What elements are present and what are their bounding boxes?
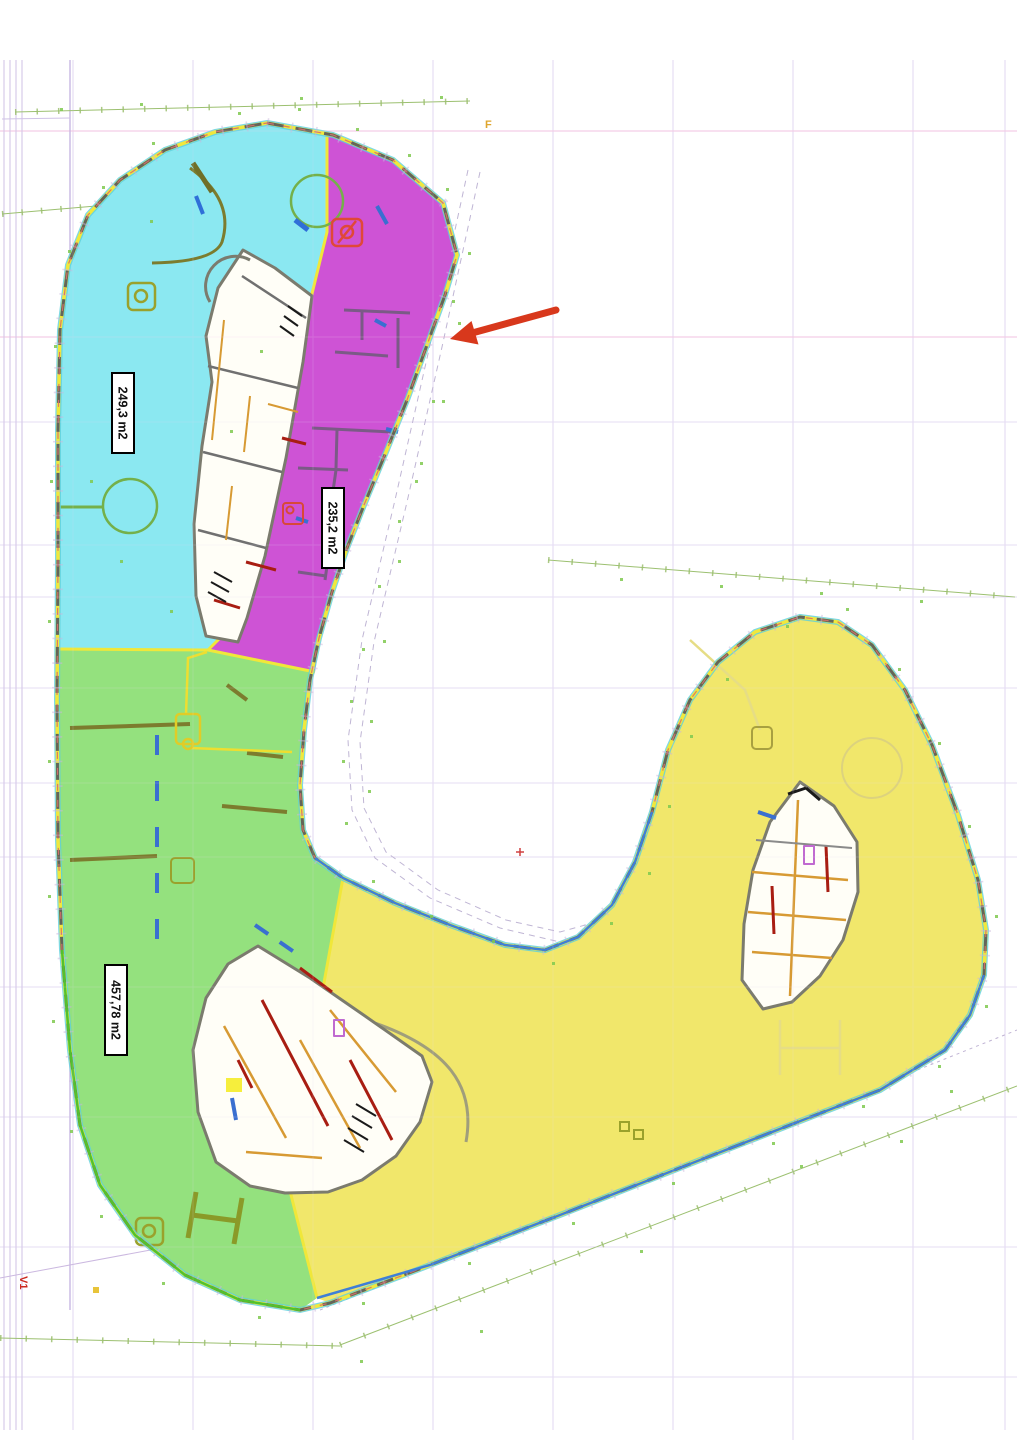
red-cross-mark (516, 848, 524, 856)
svg-text:235,2 m2: 235,2 m2 (326, 502, 340, 555)
area-label-cyan: 249,3 m2 (112, 373, 134, 453)
annotation-arrow (450, 310, 556, 345)
grid-point-f: F (485, 119, 492, 131)
axis-marker-v1: V1 (17, 1276, 29, 1289)
svg-text:249,3 m2: 249,3 m2 (116, 387, 130, 440)
zone-fills (57, 123, 986, 1310)
zone-yellow-area (288, 617, 986, 1303)
svg-text:457,78 m2: 457,78 m2 (109, 980, 123, 1040)
area-label-magenta: 235,2 m2 (322, 488, 344, 568)
yellow-point-mark (93, 1287, 99, 1293)
floor-plan-drawing: 249,3 m2 235,2 m2 457,78 m2 F V1 (0, 0, 1017, 1440)
floor-plan-canvas: 249,3 m2 235,2 m2 457,78 m2 F V1 (0, 0, 1017, 1440)
area-label-green: 457,78 m2 (105, 965, 127, 1055)
